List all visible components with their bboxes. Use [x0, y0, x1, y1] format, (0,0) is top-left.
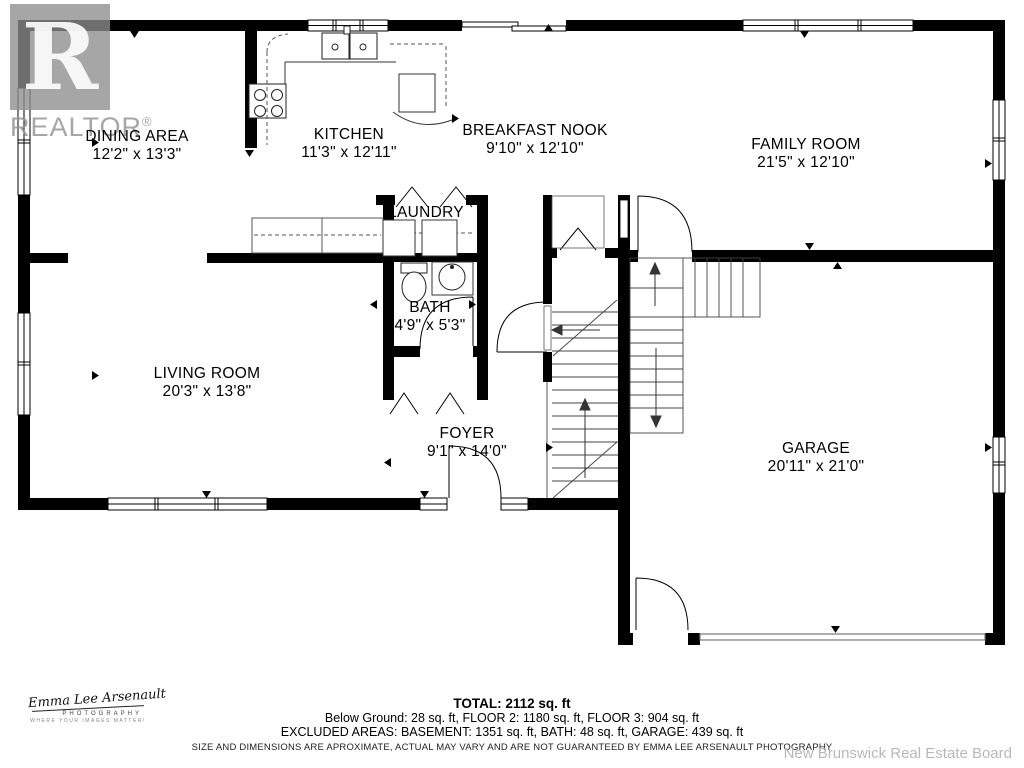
kitchen-sink	[322, 33, 349, 59]
realtor-watermark: R REALTOR®	[10, 4, 153, 143]
room-label-foyer: FOYER 9'1" x 14'0"	[427, 425, 507, 461]
realtor-r-glyph: R	[22, 11, 98, 103]
room-label-living: LIVING ROOM 20'3" x 13'8"	[154, 365, 261, 401]
walls	[18, 20, 1005, 645]
washer	[383, 220, 415, 256]
room-label-bath: BATH 4'9" x 5'3"	[394, 299, 465, 335]
room-label-dining: DINING AREA 12'2" x 13'3"	[85, 128, 188, 164]
dryer	[422, 220, 457, 256]
bath-fixtures	[401, 262, 473, 302]
room-label-garage: GARAGE 20'11" x 21'0"	[768, 440, 865, 476]
stairs	[547, 258, 760, 498]
flue	[620, 200, 628, 238]
windows	[18, 20, 1005, 510]
photographer-sub: PHOTOGRAPHY	[28, 711, 148, 717]
registered-mark: ®	[142, 114, 153, 129]
excluded-areas: EXCLUDED AREAS: BASEMENT: 1351 sq. ft, B…	[0, 725, 1024, 739]
photographer-tagline: WHERE YOUR IMAGES MATTER!	[28, 718, 148, 724]
realtor-logo-block: R	[10, 4, 110, 110]
stair-door-jamb	[544, 306, 551, 350]
opening-markers	[92, 24, 992, 633]
floor-areas: Below Ground: 28 sq. ft, FLOOR 2: 1180 s…	[0, 711, 1024, 725]
laundry-fixtures	[383, 220, 457, 256]
real-estate-board: New Brunswick Real Estate Board	[784, 745, 1012, 762]
stair-arrows	[552, 263, 661, 478]
photographer-logo: Emma Lee Arsenault PHOTOGRAPHY WHERE YOU…	[28, 692, 148, 724]
room-label-laundry: LAUNDRY	[388, 204, 464, 222]
island	[399, 74, 435, 112]
room-label-kitchen: KITCHEN 11'3" x 12'11"	[301, 126, 397, 162]
floorplan-page: R REALTOR® DINING AREA 12'2" x 13'3" KIT…	[0, 0, 1024, 768]
toilet-bowl	[402, 272, 426, 302]
garage-overhead-door	[700, 634, 985, 640]
room-label-nook: BREAKFAST NOOK 9'10" x 12'10"	[462, 122, 607, 158]
room-label-family: FAMILY ROOM 21'5" x 12'10"	[751, 136, 861, 172]
